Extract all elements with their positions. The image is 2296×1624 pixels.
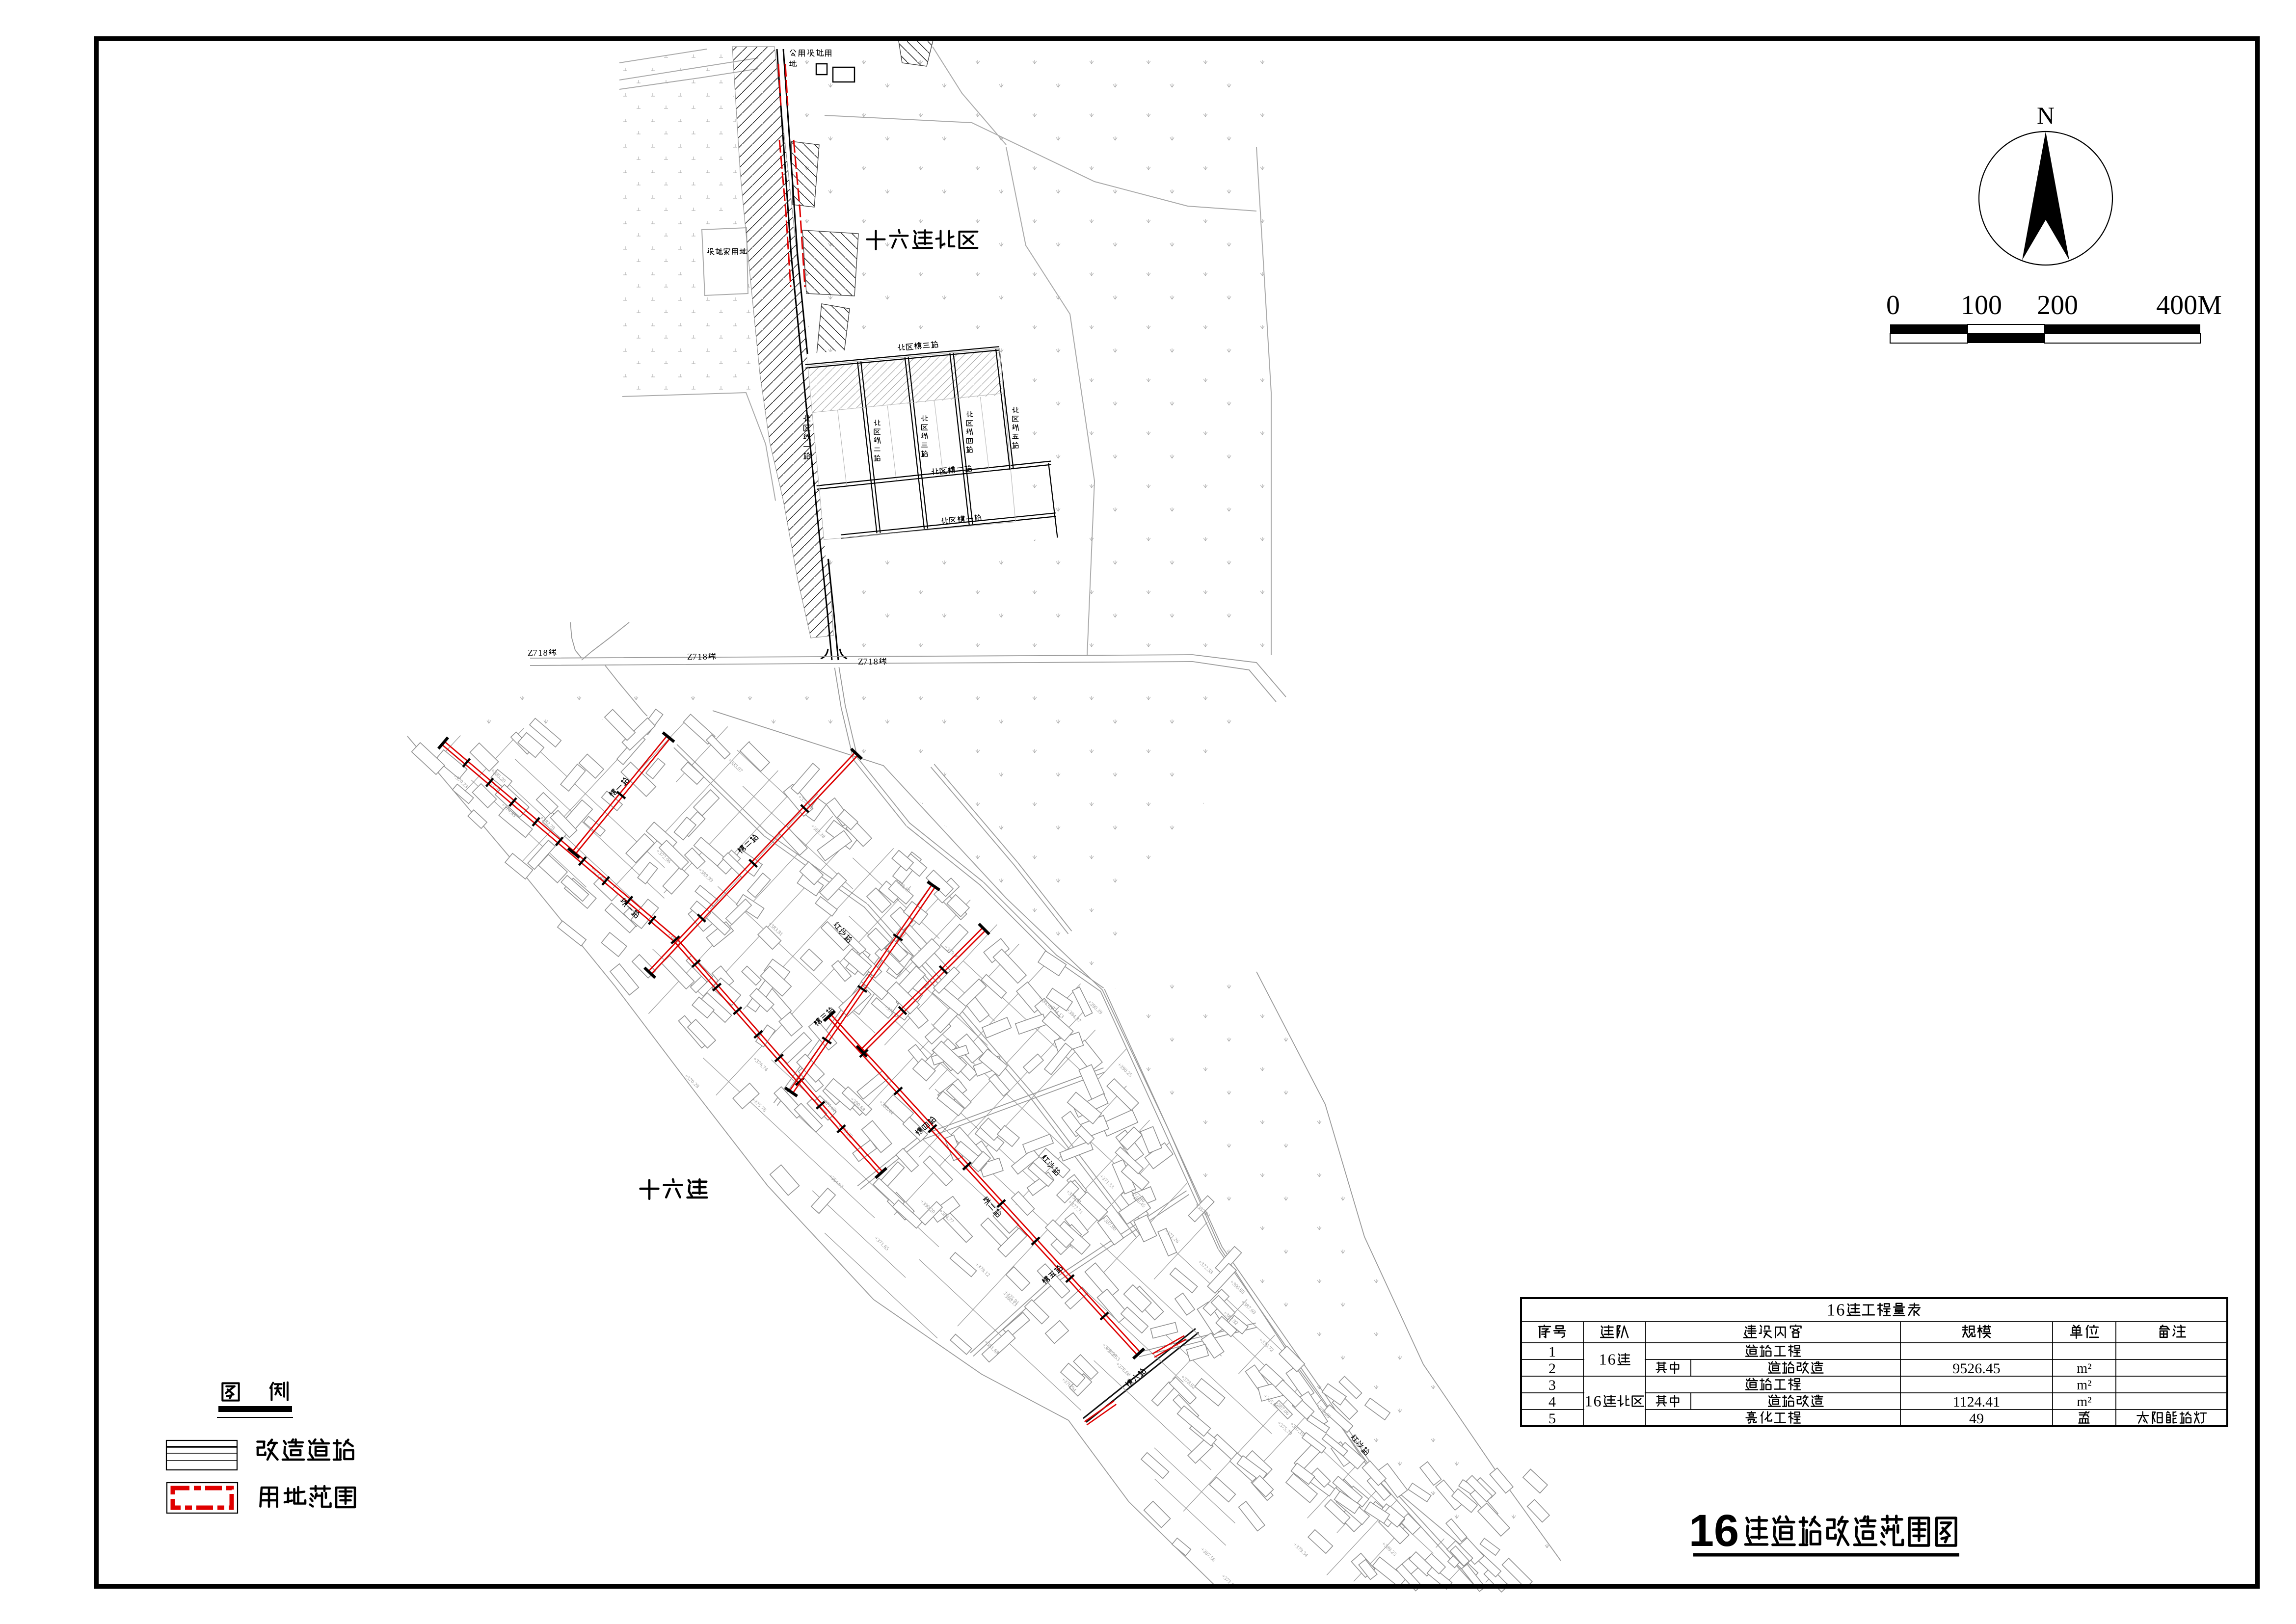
svg-text:49: 49 bbox=[1969, 1411, 1984, 1427]
svg-text:3: 3 bbox=[1548, 1377, 1556, 1393]
svg-text:7: 7 bbox=[533, 648, 537, 658]
svg-text:7: 7 bbox=[693, 652, 697, 662]
svg-text:m²: m² bbox=[2077, 1394, 2091, 1410]
svg-text:200: 200 bbox=[2037, 290, 2078, 320]
svg-text:400M: 400M bbox=[2156, 290, 2222, 320]
svg-text:6: 6 bbox=[1608, 1351, 1616, 1368]
svg-text:1: 1 bbox=[1599, 1351, 1607, 1368]
svg-text:1: 1 bbox=[1585, 1392, 1593, 1410]
svg-text:8: 8 bbox=[703, 652, 707, 662]
svg-text:2: 2 bbox=[1548, 1360, 1556, 1377]
svg-text:m²: m² bbox=[2077, 1361, 2091, 1376]
svg-text:6: 6 bbox=[1594, 1392, 1602, 1410]
svg-text:5: 5 bbox=[1548, 1411, 1556, 1427]
svg-text:8: 8 bbox=[874, 657, 878, 666]
svg-text:8: 8 bbox=[543, 648, 548, 658]
svg-text:1: 1 bbox=[868, 657, 873, 666]
svg-text:1: 1 bbox=[538, 648, 542, 658]
svg-text:4: 4 bbox=[1548, 1394, 1556, 1410]
svg-text:7: 7 bbox=[863, 657, 868, 666]
svg-text:1: 1 bbox=[1548, 1344, 1556, 1360]
svg-text:100: 100 bbox=[1961, 290, 2002, 320]
svg-text:0: 0 bbox=[1886, 290, 1900, 320]
svg-text:16: 16 bbox=[1689, 1506, 1739, 1556]
svg-text:1: 1 bbox=[697, 652, 702, 662]
svg-text:9526.45: 9526.45 bbox=[1952, 1360, 2001, 1377]
svg-text:6: 6 bbox=[1836, 1301, 1844, 1319]
svg-text:m²: m² bbox=[2077, 1378, 2091, 1393]
svg-text:1124.41: 1124.41 bbox=[1953, 1394, 2000, 1410]
svg-text:1: 1 bbox=[1827, 1301, 1835, 1319]
svg-text:N: N bbox=[2037, 102, 2055, 129]
